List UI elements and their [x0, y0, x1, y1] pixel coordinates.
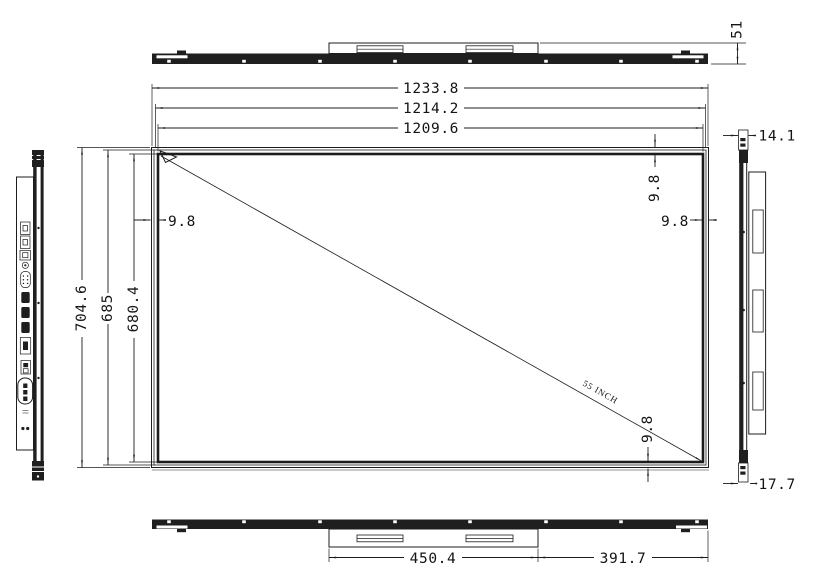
screw-hole-icon — [26, 427, 29, 430]
dim-speaker-offset-label: 391.7 — [600, 551, 647, 567]
width-dimensions: 1233.8 1214.2 1209.6 — [152, 81, 708, 152]
usb-port-icon — [21, 222, 31, 235]
power-switch-icon — [21, 361, 31, 375]
dim-bezel-top: 9.8 — [647, 134, 663, 202]
front-view: 55 INCH 9.8 9.8 9.8 9.8 — [134, 134, 717, 482]
top-speaker-box — [329, 43, 538, 54]
audio-jack-icon — [22, 262, 28, 268]
display-dimension-drawing: 51 1233.8 1214.2 1209.6 704.6 685 680.4 — [0, 0, 820, 587]
dim-bottom-depth: 17.7 — [723, 477, 796, 493]
dim-overall-width-label: 1233.8 — [403, 81, 459, 97]
dim-active-height-label: 680.4 — [126, 286, 142, 333]
dim-bezel-bottom: 9.8 — [640, 415, 656, 482]
usb-port-icon — [21, 236, 31, 249]
side-vent-grille-icon — [753, 210, 763, 410]
hdmi-port-icon — [21, 307, 29, 318]
dim-bottom-depth-label: 17.7 — [759, 477, 796, 493]
technical-drawing-page: 51 1233.8 1214.2 1209.6 704.6 685 680.4 — [0, 0, 820, 587]
right-side-view: 14.1 17.7 — [723, 129, 796, 494]
dim-thickness-label: 51 — [730, 20, 746, 39]
dim-bezel-top-label: 9.8 — [647, 174, 663, 202]
speaker-grille-icon — [357, 535, 513, 542]
bottom-profile-bar — [152, 520, 708, 530]
height-dimensions: 704.6 685 680.4 — [74, 148, 158, 468]
speaker-grille-icon — [357, 46, 513, 53]
port-icons — [18, 222, 33, 430]
dim-bezel-left-label: 9.8 — [168, 214, 196, 230]
dim-speaker-width-label: 450.4 — [410, 551, 457, 567]
dim-active-width-label: 1209.6 — [403, 121, 459, 137]
diagonal-size-label: 55 INCH — [581, 378, 620, 406]
dim-bezel-bottom-label: 9.8 — [640, 415, 656, 443]
dim-top-depth-label: 14.1 — [759, 129, 796, 145]
vga-port-icon — [21, 272, 31, 288]
dim-bezel-right-label: 9.8 — [661, 214, 689, 230]
dim-speaker-width: 450.4 — [329, 531, 708, 568]
left-side-view — [17, 150, 45, 481]
dim-glass-height-label: 685 — [100, 294, 116, 322]
hdmi-port-icon — [21, 292, 29, 303]
dim-speaker-offset: 391.7 — [538, 551, 708, 567]
dim-glass-width-label: 1214.2 — [403, 101, 459, 117]
bottom-speaker-box — [329, 529, 538, 547]
hdmi-port-icon — [21, 322, 29, 333]
dim-top-depth: 14.1 — [723, 129, 796, 145]
screw-hole-icon — [21, 427, 24, 430]
diagonal-line — [161, 156, 702, 461]
dim-overall-height-label: 704.6 — [74, 285, 90, 332]
top-profile-bar — [152, 54, 708, 65]
lan-port-icon — [20, 251, 31, 261]
dim-bezel-left: 9.8 — [134, 214, 196, 230]
ac-power-inlet-icon — [18, 378, 33, 404]
top-view: 51 — [152, 20, 746, 64]
bottom-view: 450.4 391.7 — [152, 520, 708, 568]
av-port-icon — [20, 338, 30, 355]
